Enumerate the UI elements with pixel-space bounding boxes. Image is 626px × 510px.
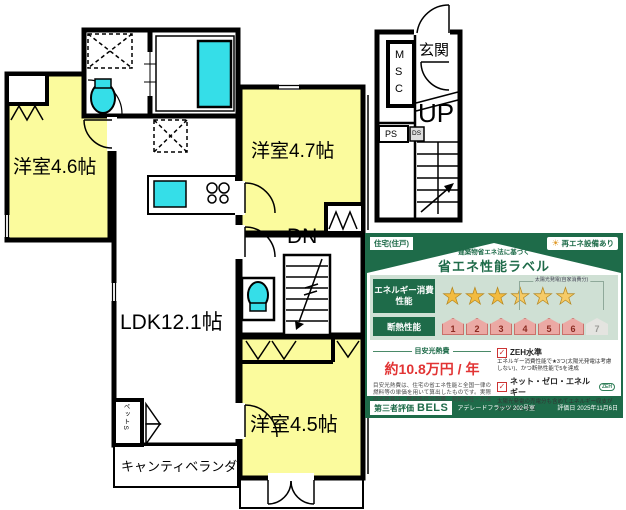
energy-row-label: エネルギー消費性能 bbox=[373, 279, 435, 313]
bathtub-icon bbox=[198, 41, 231, 107]
room-a-label: 洋室4.6帖 bbox=[13, 152, 96, 179]
zeh-logo-badge: ZEH bbox=[599, 383, 615, 391]
check-icon-2: ✓ bbox=[497, 382, 507, 392]
check-icon: ✓ bbox=[497, 348, 507, 358]
star-2: ★ bbox=[465, 283, 486, 309]
renewable-badge: ☀ 再エネ設備あり bbox=[547, 237, 618, 250]
sun-icon: ☀ bbox=[551, 239, 559, 248]
insulation-badge-7: 7 bbox=[586, 318, 608, 335]
bels-brand: BELS bbox=[417, 402, 448, 414]
insulation-badge-1: 1 bbox=[442, 318, 464, 335]
cost-value: 約10.8万円 / 年 bbox=[373, 359, 491, 379]
insulation-row-label: 断熱性能 bbox=[373, 317, 435, 336]
ldk-label: LDK12.1帖 bbox=[120, 306, 223, 336]
lower-balcony bbox=[240, 478, 363, 508]
toilet-2-base-icon bbox=[250, 303, 266, 311]
room-b-label: 洋室4.7帖 bbox=[251, 136, 334, 163]
pet-storage-label: ペットS bbox=[120, 403, 130, 431]
zeh-level-label: ZEH水準 bbox=[510, 347, 542, 358]
stairs-down-box bbox=[284, 255, 330, 335]
insulation-badges: 1234567 bbox=[440, 318, 608, 335]
star-3: ★ bbox=[487, 283, 508, 309]
room-c-label: 洋室4.5帖 bbox=[250, 408, 338, 437]
label-card: エネルギー消費性能 太陽光発電(自家消費分) ★★★★★★ 断熱性能 12345… bbox=[367, 273, 621, 396]
evaluation-bar: 第三者評価 BELS アデレードフラッツ 202号室 評価日 2025年11月6… bbox=[365, 397, 623, 418]
insulation-badge-6: 6 bbox=[562, 318, 584, 335]
cost-heading-label: 目安光熱費 bbox=[415, 346, 450, 356]
zeh-level-row: ✓ ZEH水準 bbox=[497, 347, 615, 358]
veranda-label: キャンティベランダ bbox=[121, 456, 237, 475]
floor-plan-page: 洋室4.6帖 洋室4.7帖 LDK12.1帖 洋室4.5帖 キャンティベランダ … bbox=[0, 0, 626, 510]
renewable-badge-label: 再エネ設備あり bbox=[562, 238, 615, 249]
solar-note: 太陽光発電(自家消費分) bbox=[533, 276, 590, 283]
stars-row: 太陽光発電(自家消費分) ★★★★★★ bbox=[440, 283, 576, 309]
ps-label: PS bbox=[385, 129, 397, 139]
entrance-label: 玄関 bbox=[419, 39, 449, 60]
energy-row: エネルギー消費性能 太陽光発電(自家消費分) ★★★★★★ bbox=[373, 278, 615, 314]
bels-box: 第三者評価 BELS bbox=[370, 401, 452, 415]
ldk-walls bbox=[114, 116, 238, 445]
net-zero-label: ネット・ゼロ・エネルギー bbox=[510, 376, 594, 398]
msc-label: MSC bbox=[395, 47, 408, 98]
stairs-down-label: DN bbox=[287, 225, 317, 249]
insulation-badge-3: 3 bbox=[490, 318, 512, 335]
star-1: ★ bbox=[442, 283, 463, 309]
net-zero-row: ✓ ネット・ゼロ・エネルギー ZEH bbox=[497, 376, 615, 398]
building-type-badge: 住宅(住戸) bbox=[370, 237, 413, 250]
insulation-badge-5: 5 bbox=[538, 318, 560, 335]
heading-line-left bbox=[373, 351, 412, 352]
panel-title: 省エネ性能ラベル bbox=[365, 256, 623, 275]
heading-line-right bbox=[453, 351, 492, 352]
insulation-badge-4: 4 bbox=[514, 318, 536, 335]
kitchen-sink-icon bbox=[154, 181, 186, 207]
energy-label-panel: 住宅(住戸) ☀ 再エネ設備あり 建築物省エネ法に基づく 省エネ性能ラベル エネ… bbox=[365, 233, 623, 418]
stairs-up-label: UP bbox=[418, 98, 454, 129]
insulation-row: 断熱性能 1234567 bbox=[373, 316, 615, 337]
building-name: アデレードフラッツ 202号室 bbox=[457, 403, 535, 412]
ds-label: DS bbox=[412, 130, 421, 137]
cost-heading: 目安光熱費 bbox=[373, 346, 491, 356]
room-a-closet bbox=[7, 74, 47, 104]
evaluation-label: 第三者評価 bbox=[374, 403, 414, 414]
insulation-badge-2: 2 bbox=[466, 318, 488, 335]
evaluation-date: 評価日 2025年11月6日 bbox=[557, 403, 618, 412]
rating-rows: エネルギー消費性能 太陽光発電(自家消費分) ★★★★★★ 断熱性能 12345… bbox=[370, 275, 618, 340]
zeh-level-desc: エネルギー消費性能で★3つ(太陽光発電は考慮しない)、かつ断熱性能で5を達成 bbox=[497, 359, 615, 373]
toilet-tank-icon bbox=[95, 79, 111, 88]
solar-bracket: 太陽光発電(自家消費分) bbox=[519, 281, 604, 310]
